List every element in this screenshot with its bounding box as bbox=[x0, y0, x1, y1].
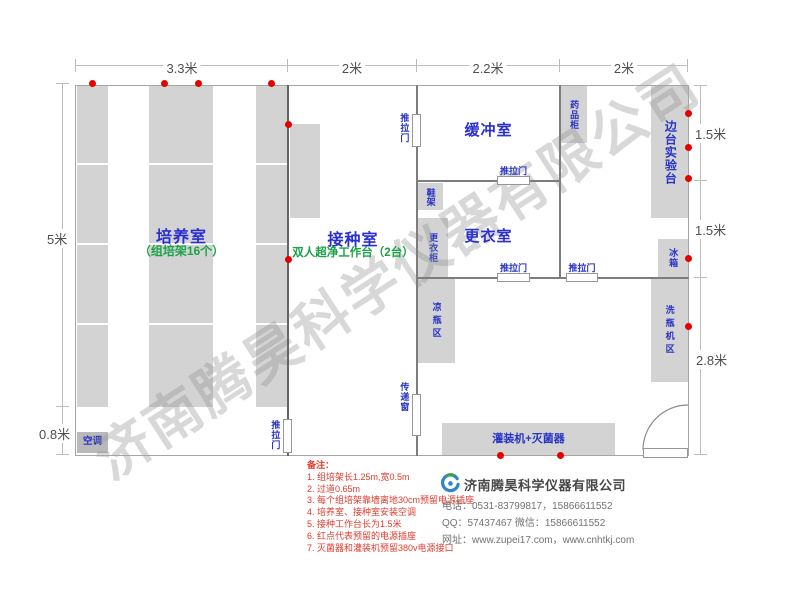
power-socket-dot bbox=[685, 323, 692, 330]
dim-top-3: 2.2米 bbox=[469, 58, 506, 77]
power-socket-dot bbox=[285, 121, 292, 128]
dim-right-1: 1.5米 bbox=[692, 124, 729, 143]
power-socket-dot bbox=[685, 175, 692, 182]
power-socket-dot bbox=[557, 452, 564, 459]
pass-window-label: 传递窗 bbox=[399, 382, 409, 412]
power-socket-dot bbox=[89, 80, 96, 87]
dim-left-1: 5米 bbox=[44, 229, 70, 248]
room-sublabel-inoculation: 双人超净工作台（2台） bbox=[281, 244, 425, 260]
pass-window bbox=[412, 394, 421, 436]
dim-right-2: 1.5米 bbox=[692, 220, 729, 239]
sliding-door-label: 推拉门 bbox=[270, 420, 280, 450]
power-socket-dot bbox=[285, 256, 292, 263]
dim-top-1: 3.3米 bbox=[163, 58, 200, 77]
company-qq-wechat: QQ：57437467 微信：15866611552 bbox=[442, 514, 605, 529]
company-logo-icon bbox=[438, 471, 461, 494]
wall-changing-bottling bbox=[417, 277, 689, 279]
sliding-door-label: 推拉门 bbox=[399, 113, 409, 143]
power-socket-dot bbox=[195, 80, 202, 87]
room-label-changing: 更衣室 bbox=[417, 225, 560, 246]
wall-buffer-corridor bbox=[559, 85, 561, 279]
power-socket-dot bbox=[685, 110, 692, 117]
wall-buffer-changing bbox=[417, 180, 560, 182]
sliding-door-cultivation bbox=[283, 419, 292, 453]
company-name: 济南腾昊科学仪器有限公司 bbox=[464, 475, 626, 494]
dimension-line-left bbox=[62, 83, 63, 455]
dim-top-4: 2米 bbox=[611, 58, 637, 77]
entry-door-leaf bbox=[643, 448, 688, 458]
floorplan-page: 济南腾昊科学仪器有限公司 药品柜 边台实验台 冰箱 洗瓶机区 凉瓶区 鞋架 bbox=[0, 0, 800, 600]
wall-cultivation-inoculation bbox=[287, 85, 289, 456]
sliding-door-label: 推拉门 bbox=[566, 263, 598, 273]
power-socket-dot bbox=[268, 80, 275, 87]
power-socket-dot bbox=[497, 452, 504, 459]
room-sublabel-cultivation: （组培架16个） bbox=[75, 242, 288, 259]
power-socket-dot bbox=[161, 80, 168, 87]
room-label-buffer: 缓冲室 bbox=[417, 119, 560, 140]
dim-top-2: 2米 bbox=[339, 58, 365, 77]
power-socket-dot bbox=[685, 255, 692, 262]
dim-right-3: 2.8米 bbox=[693, 350, 730, 369]
sliding-door-label: 推拉门 bbox=[497, 166, 530, 176]
company-website: 网址：www.zupei17.com，www.cnhtkj.com bbox=[442, 531, 634, 546]
sliding-door-buffer-changing bbox=[497, 176, 530, 185]
sliding-door-label: 推拉门 bbox=[497, 263, 530, 273]
power-socket-dot bbox=[685, 144, 692, 151]
sliding-door-changing-bottling bbox=[497, 273, 530, 282]
sliding-door-corridor-bottling bbox=[566, 273, 598, 282]
company-phone: 电话：0531-83799817，15866611552 bbox=[442, 497, 613, 512]
dim-left-2: 0.8米 bbox=[36, 424, 73, 443]
